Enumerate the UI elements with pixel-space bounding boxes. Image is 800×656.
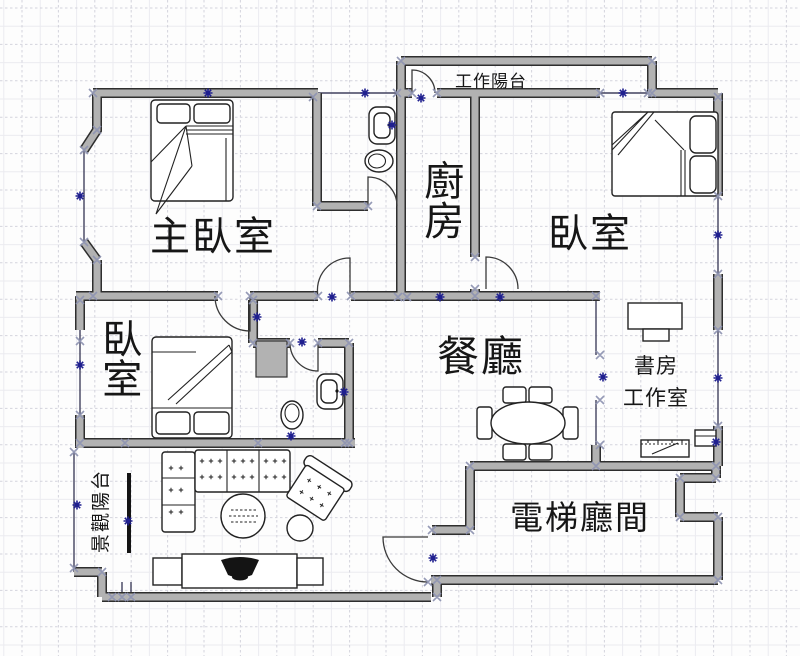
toilet-lower[interactable]: [281, 401, 303, 429]
label-bedroom-left[interactable]: 臥室: [97, 318, 140, 410]
washbasin-lower[interactable]: [317, 374, 343, 409]
label-bedroom-right[interactable]: 臥室: [548, 212, 632, 255]
label-kitchen[interactable]: 廚房: [419, 160, 462, 252]
coffee-table[interactable]: [221, 494, 265, 538]
label-elevator-hall[interactable]: 電梯廳間: [510, 502, 650, 538]
label-study-line1: 書房: [634, 354, 678, 378]
tv-cabinet[interactable]: [153, 554, 323, 588]
shower[interactable]: [256, 341, 287, 377]
label-study[interactable]: 書房工作室: [600, 351, 712, 414]
left-bed[interactable]: [152, 337, 232, 438]
balcony-slider[interactable]: [127, 473, 131, 553]
storage-box[interactable]: [695, 430, 716, 446]
toilet-top[interactable]: [365, 150, 393, 172]
stool[interactable]: [287, 515, 313, 541]
bench[interactable]: [641, 440, 689, 457]
label-dining-room[interactable]: 餐廳: [437, 336, 525, 381]
label-view-balcony[interactable]: 景觀陽台: [92, 455, 114, 567]
floor-plan-canvas: 主臥室 廚房 臥室 臥室 餐廳 書房工作室 工作陽台 景觀陽台 電梯廳間: [0, 0, 800, 656]
armchair[interactable]: [282, 454, 353, 524]
label-work-balcony[interactable]: 工作陽台: [455, 73, 527, 91]
master-bed[interactable]: [151, 100, 233, 214]
label-study-line2: 工作室: [623, 386, 689, 410]
dining-set[interactable]: [477, 387, 578, 460]
right-bed[interactable]: [612, 112, 718, 196]
label-master-bedroom[interactable]: 主臥室: [150, 215, 276, 258]
